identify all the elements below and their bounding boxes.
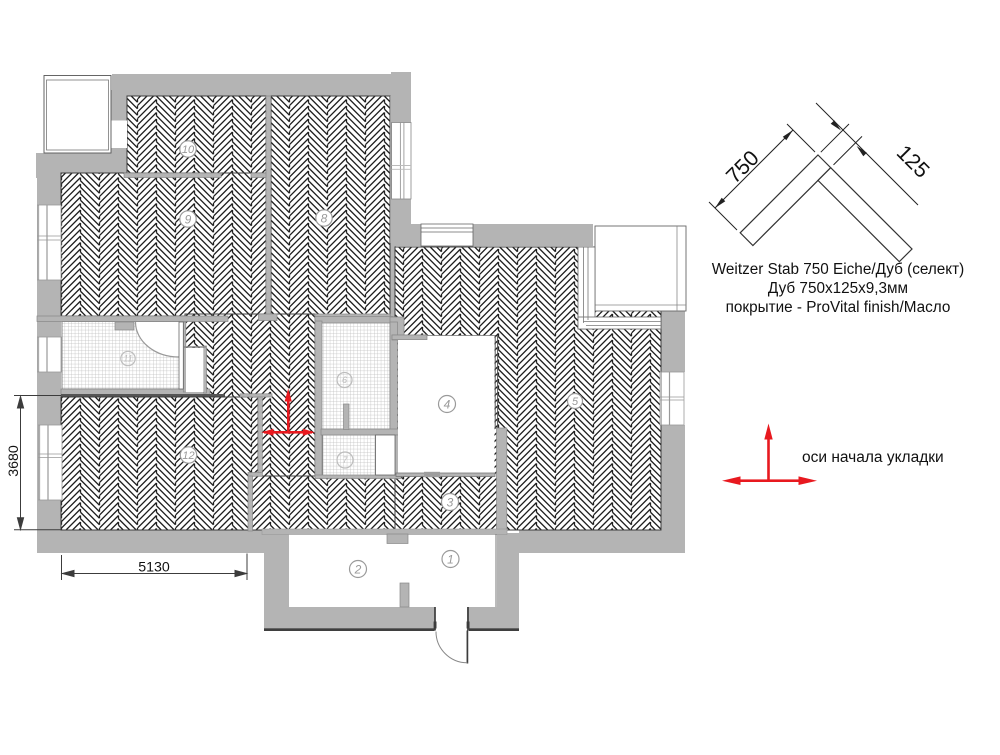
svg-text:4: 4 [444,397,451,411]
svg-text:5: 5 [572,396,579,408]
svg-text:покрытие - ProVital finish/Мас: покрытие - ProVital finish/Масло [726,299,951,316]
svg-text:10: 10 [182,144,195,156]
svg-text:Дуб 750х125х9,3мм: Дуб 750х125х9,3мм [768,280,908,297]
svg-text:11: 11 [123,354,132,364]
svg-text:12: 12 [182,450,194,462]
svg-text:9: 9 [185,212,192,226]
svg-text:Weitzer Stab 750 Eiche/Дуб (се: Weitzer Stab 750 Eiche/Дуб (селект) [712,261,965,278]
svg-text:1: 1 [447,552,454,566]
svg-text:3: 3 [447,495,454,509]
svg-text:6: 6 [342,375,347,385]
svg-text:8: 8 [321,211,328,225]
svg-text:2: 2 [354,562,362,576]
svg-text:оси начала укладки: оси начала укладки [802,449,944,466]
svg-text:5130: 5130 [138,560,170,576]
svg-text:3680: 3680 [6,445,22,477]
